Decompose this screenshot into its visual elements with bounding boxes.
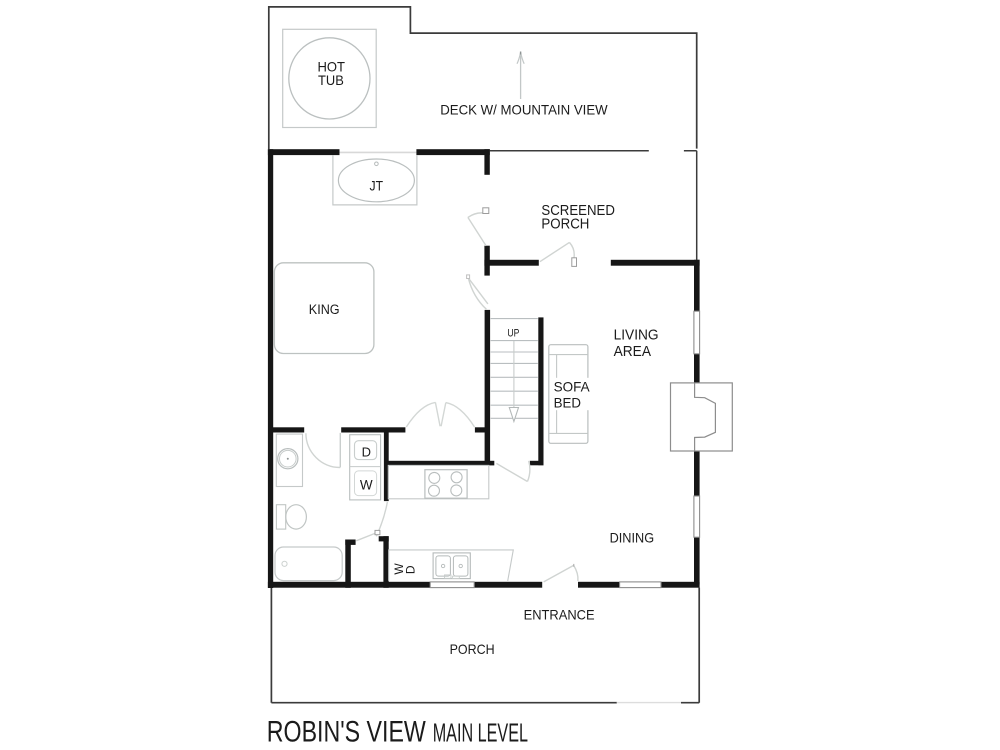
svg-text:D: D: [403, 565, 417, 574]
svg-text:KING: KING: [309, 302, 340, 317]
svg-text:AREA: AREA: [614, 344, 652, 360]
svg-text:D: D: [362, 444, 371, 459]
svg-text:MAIN LEVEL: MAIN LEVEL: [433, 718, 528, 748]
svg-text:UP: UP: [507, 327, 519, 339]
svg-text:JT: JT: [370, 177, 384, 193]
svg-text:DECK W/ MOUNTAIN VIEW: DECK W/ MOUNTAIN VIEW: [440, 102, 608, 118]
svg-text:DINING: DINING: [610, 529, 655, 545]
svg-text:SOFA: SOFA: [554, 379, 591, 395]
svg-text:W: W: [360, 478, 373, 493]
svg-text:PORCH: PORCH: [541, 217, 589, 233]
svg-text:TUB: TUB: [318, 72, 344, 88]
svg-text:LIVING: LIVING: [614, 328, 659, 344]
svg-text:ENTRANCE: ENTRANCE: [524, 607, 595, 623]
svg-text:ROBIN'S VIEW: ROBIN'S VIEW: [267, 716, 427, 749]
svg-text:BED: BED: [554, 395, 581, 411]
svg-text:PORCH: PORCH: [450, 641, 495, 657]
